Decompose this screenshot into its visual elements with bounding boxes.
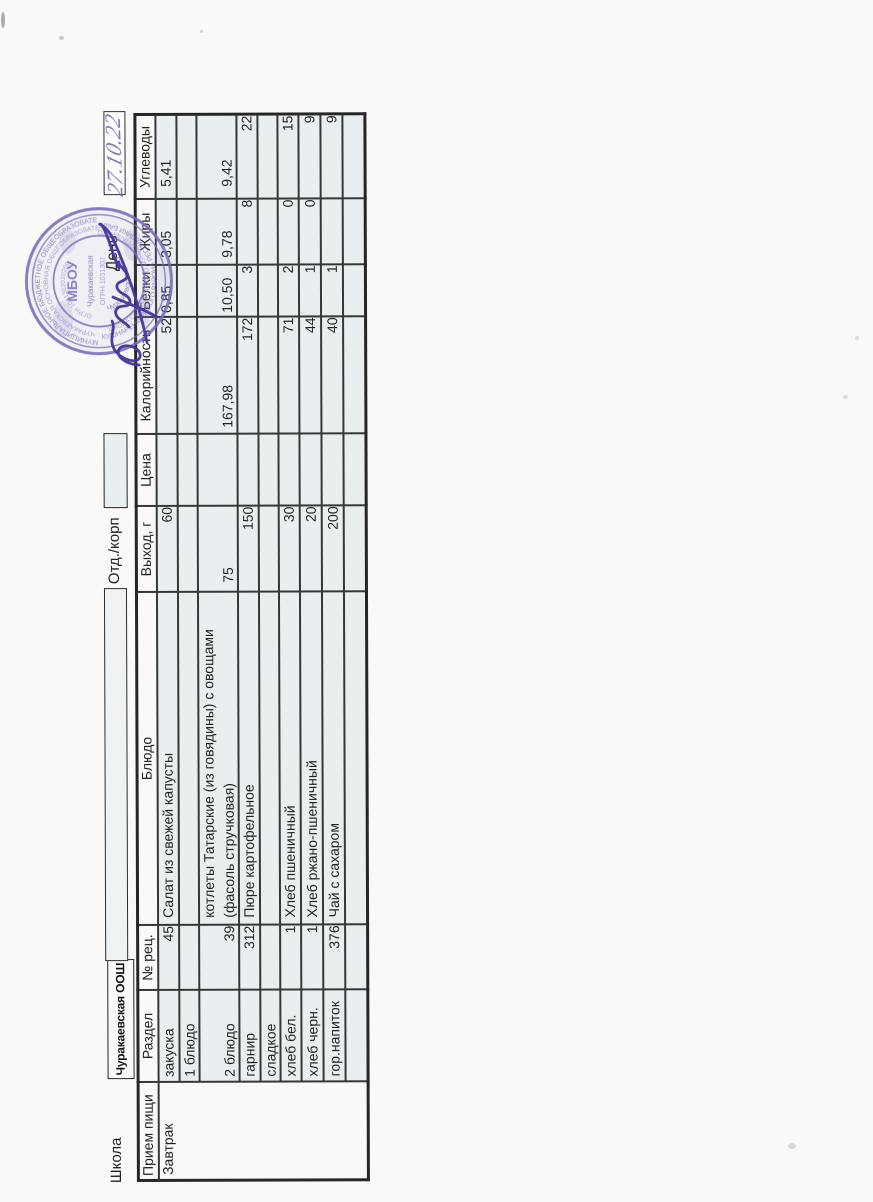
svg-text:Чуракаевская: Чуракаевская bbox=[86, 256, 95, 307]
svg-text:ОГРН 1031302: ОГРН 1031302 bbox=[100, 257, 107, 305]
svg-text:27.10.22: 27.10.22 bbox=[100, 111, 127, 198]
svg-text:МБОУ: МБОУ bbox=[64, 260, 80, 301]
